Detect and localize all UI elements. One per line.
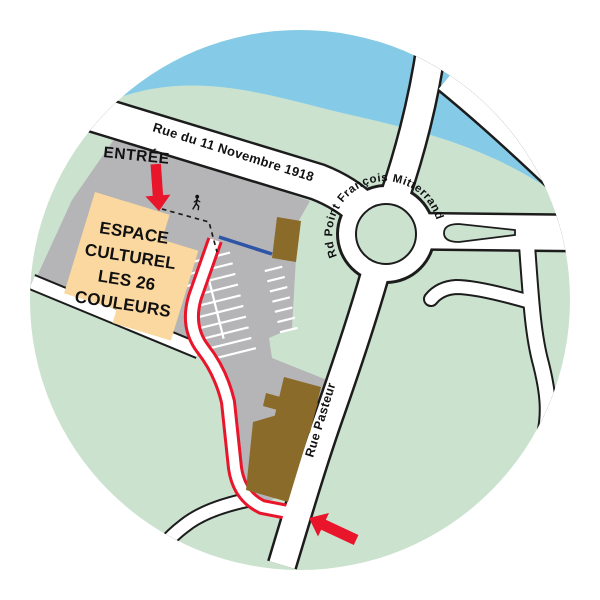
access-map: Rue du 11 Novembre 1918 Rd Point Françoi… <box>0 0 600 600</box>
roundabout-island <box>356 204 416 264</box>
building-north <box>272 217 301 262</box>
site-map-svg: Rue du 11 Novembre 1918 Rd Point Françoi… <box>0 0 600 600</box>
